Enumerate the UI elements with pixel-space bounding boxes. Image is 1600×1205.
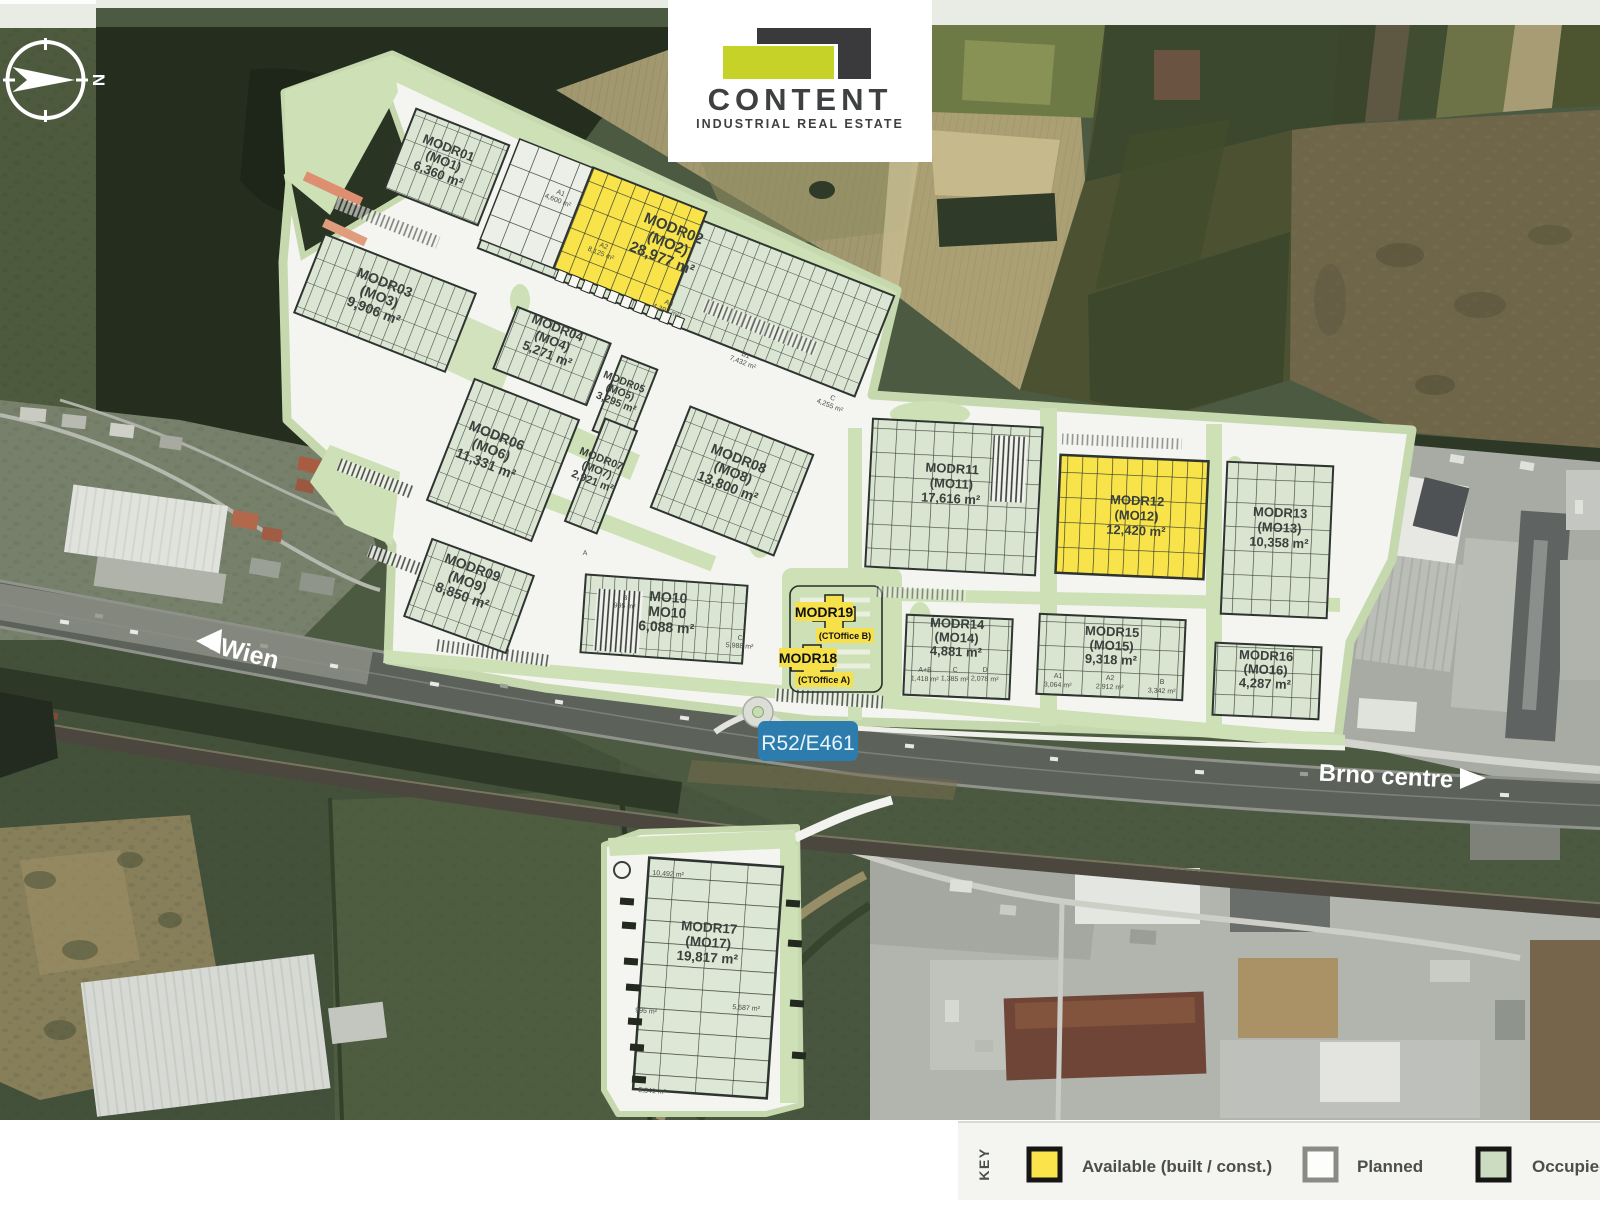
svg-text:CONTENT: CONTENT xyxy=(708,82,893,117)
svg-text:4,287 m²: 4,287 m² xyxy=(1239,675,1292,692)
svg-text:INDUSTRIAL REAL ESTATE: INDUSTRIAL REAL ESTATE xyxy=(696,117,904,131)
svg-text:B: B xyxy=(623,595,628,602)
svg-text:KEY: KEY xyxy=(976,1147,992,1180)
svg-text:3,064 m²: 3,064 m² xyxy=(1044,681,1073,689)
svg-text:4,881 m²: 4,881 m² xyxy=(930,643,983,660)
svg-text:3,342 m²: 3,342 m² xyxy=(1148,687,1177,695)
svg-text:D: D xyxy=(982,667,987,674)
svg-text:R52/E461: R52/E461 xyxy=(761,732,854,755)
svg-text:Available (built / const.): Available (built / const.) xyxy=(1082,1157,1272,1176)
svg-text:1,385 m²: 1,385 m² xyxy=(941,675,970,683)
svg-text:1,418 m²: 1,418 m² xyxy=(911,675,940,683)
svg-text:A+B: A+B xyxy=(918,667,932,675)
svg-text:A2: A2 xyxy=(1106,675,1115,682)
svg-text:(CTOffice A): (CTOffice A) xyxy=(798,675,850,685)
svg-text:2,078 m²: 2,078 m² xyxy=(971,675,1000,683)
svg-text:Planned: Planned xyxy=(1357,1157,1423,1176)
svg-text:N: N xyxy=(89,74,108,86)
svg-text:C: C xyxy=(737,635,743,642)
svg-text:2,912 m²: 2,912 m² xyxy=(1096,683,1125,691)
svg-text:9,318 m²: 9,318 m² xyxy=(1085,651,1138,668)
svg-text:A: A xyxy=(583,550,588,557)
svg-text:MODR18: MODR18 xyxy=(779,650,838,666)
svg-text:10,358 m²: 10,358 m² xyxy=(1249,534,1310,552)
svg-text:(CTOffice B): (CTOffice B) xyxy=(819,631,871,641)
svg-text:B: B xyxy=(1160,679,1165,686)
svg-text:Occupied: Occupied xyxy=(1532,1157,1600,1176)
svg-text:C: C xyxy=(952,667,957,674)
svg-text:MODR19: MODR19 xyxy=(795,604,854,620)
svg-text:A1: A1 xyxy=(1054,673,1063,680)
svg-text:17,616 m²: 17,616 m² xyxy=(921,489,982,507)
svg-text:12,420 m²: 12,420 m² xyxy=(1106,522,1167,540)
